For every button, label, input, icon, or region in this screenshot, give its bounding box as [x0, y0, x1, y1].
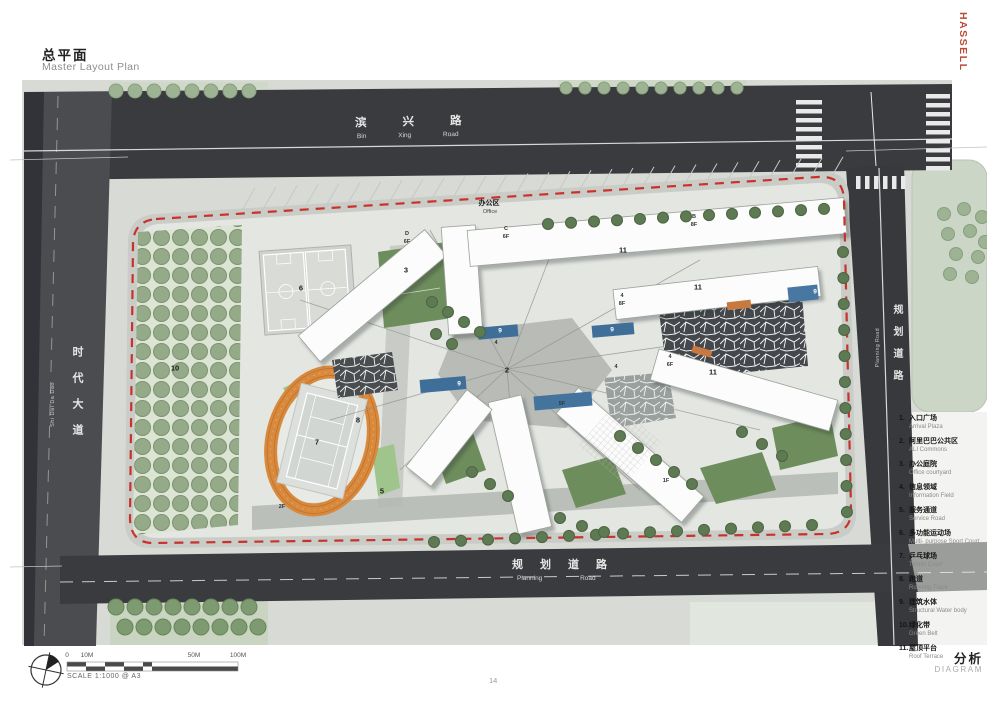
tree-icon: [443, 307, 454, 318]
tree-icon: [427, 297, 438, 308]
scale-bar: [67, 662, 238, 671]
tree-icon: [483, 534, 494, 545]
scale-tick-100m: 100M: [230, 652, 246, 659]
tree-icon: [212, 619, 228, 635]
tree-icon: [841, 507, 852, 518]
crosswalk-stripe: [926, 103, 950, 108]
tree-icon: [615, 431, 626, 442]
tree-icon: [560, 82, 572, 94]
legend-item-number: 10.: [899, 622, 909, 629]
crosswalk-stripe: [926, 139, 950, 144]
scale-caption: SCALE 1:1000 @ A3: [67, 673, 141, 680]
site-plan-drawing: [0, 0, 987, 703]
legend-item-label-en: Service Road: [909, 516, 987, 522]
crosswalk-stripe: [856, 176, 861, 189]
legend-item-number: 2.: [899, 438, 909, 445]
tree-icon: [669, 467, 680, 478]
tree-icon: [447, 339, 458, 350]
tree-icon: [757, 439, 768, 450]
tree-icon: [204, 84, 218, 98]
scale-tick-50m: 50M: [188, 652, 201, 659]
tree-icon: [773, 206, 784, 217]
tree-icon: [839, 351, 850, 362]
crosswalk-stripe: [926, 94, 950, 99]
legend-item-label-en: ALI Commons: [909, 447, 987, 453]
tree-icon: [543, 219, 554, 230]
tree-icon: [966, 271, 979, 284]
crosswalk-stripe: [796, 127, 822, 132]
legend-item-number: 6.: [899, 530, 909, 537]
tree-icon: [146, 599, 162, 615]
tree-icon: [599, 527, 610, 538]
legend-item: 9.建筑水体Structural Water body: [899, 597, 987, 614]
crosswalk-stripe: [796, 136, 822, 141]
road-name-shidai-en: Shi Dai Da Dao: [50, 382, 56, 427]
legend-item: 4.信息领域Information Field: [899, 482, 987, 499]
road-name-planning-south-zh: 规划道路: [512, 556, 624, 572]
legend-item: 3.办公庭院Office courtyard: [899, 459, 987, 476]
legend-item: 5.服务通道Service Road: [899, 505, 987, 522]
tree-icon: [117, 619, 133, 635]
legend-item-label-zh: 乒乓球场: [909, 553, 937, 560]
tree-icon: [777, 451, 788, 462]
tree-icon: [727, 208, 738, 219]
legend-item-label-zh: 跑道: [909, 576, 923, 583]
tree-icon: [731, 82, 743, 94]
crosswalk-stripe: [926, 112, 950, 117]
tree-icon: [589, 216, 600, 227]
tree-icon: [672, 526, 683, 537]
tree-icon: [839, 377, 850, 388]
tree-icon: [655, 82, 667, 94]
crosswalk-stripe: [926, 166, 950, 171]
tree-icon: [136, 619, 152, 635]
legend-item-label-en: Green Belt: [909, 631, 987, 637]
tree-icon: [838, 299, 849, 310]
legend-item-number: 1.: [899, 415, 909, 422]
tree-icon: [231, 619, 247, 635]
tree-icon: [485, 479, 496, 490]
tree-icon: [753, 522, 764, 533]
tree-icon: [165, 599, 181, 615]
tree-icon: [109, 84, 123, 98]
tree-icon: [537, 532, 548, 543]
tree-icon: [819, 203, 830, 214]
tree-icon: [598, 82, 610, 94]
tree-icon: [976, 211, 987, 224]
tree-icon: [612, 215, 623, 226]
tree-icon: [750, 207, 761, 218]
tree-icon: [636, 82, 648, 94]
tree-icon: [185, 84, 199, 98]
master-layout-plan-page: 总平面 Master Layout Plan HASSELL 滨兴路 Bin X…: [0, 0, 987, 703]
tree-icon: [712, 82, 724, 94]
tree-icon: [693, 82, 705, 94]
legend-item-label-zh: 信息领域: [909, 484, 937, 491]
crosswalk-stripe: [796, 109, 822, 114]
tree-icon: [841, 481, 852, 492]
tree-icon: [250, 619, 266, 635]
scale-tick-10m: 10M: [81, 652, 94, 659]
tree-icon: [796, 205, 807, 216]
tree-icon: [459, 317, 470, 328]
legend-item-label-en: Running Track: [909, 585, 987, 591]
tree-icon: [840, 429, 851, 440]
tree-icon: [658, 212, 669, 223]
crosswalk-stripe: [796, 118, 822, 123]
tree-icon: [681, 211, 692, 222]
tree-icon: [566, 217, 577, 228]
tree-icon: [456, 535, 467, 546]
legend-item-label-zh: 绿化带: [909, 622, 930, 629]
tree-icon: [958, 203, 971, 216]
page-number: 14: [489, 676, 497, 685]
tree-icon: [964, 225, 977, 238]
tree-icon: [242, 84, 256, 98]
tree-icon: [510, 533, 521, 544]
tree-icon: [618, 528, 629, 539]
tree-icon: [651, 455, 662, 466]
crosswalk-stripe: [883, 176, 888, 189]
tree-icon: [223, 84, 237, 98]
tree-icon: [555, 513, 566, 524]
legend-item: 6.多功能运动场Multi- purpose Sport Court: [899, 528, 987, 545]
legend-item: 1.入口广场Arrival Plaza: [899, 413, 987, 430]
green-belt: [133, 225, 242, 535]
tree-icon: [942, 228, 955, 241]
tree-icon: [699, 524, 710, 535]
legend-item-label-en: Tennis Court: [909, 562, 987, 568]
tree-icon: [503, 491, 514, 502]
tree-icon: [979, 236, 987, 249]
tree-icon: [579, 82, 591, 94]
tree-icon: [429, 537, 440, 548]
tree-icon: [807, 519, 818, 530]
crosswalk-stripe: [926, 130, 950, 135]
legend-item-label-en: Multi- purpose Sport Court: [909, 539, 987, 545]
tree-icon: [944, 268, 957, 281]
tree-icon: [128, 84, 142, 98]
crosswalk-stripe: [865, 176, 870, 189]
legend-item-number: 7.: [899, 553, 909, 560]
legend-item: 7.乒乓球场Tennis Court: [899, 551, 987, 568]
crosswalk-stripe: [796, 100, 822, 105]
legend-item-label-zh: 阿里巴巴公共区: [909, 438, 958, 445]
page-subtitle: Master Layout Plan: [42, 61, 140, 73]
road-name-binxing-zh: 滨兴路: [355, 112, 498, 131]
tree-icon: [840, 403, 851, 414]
road-name-planning-south-en: Planning Road: [517, 575, 596, 582]
crosswalk-stripe: [892, 176, 897, 189]
legend-item: 10.绿化带Green Belt: [899, 620, 987, 637]
tree-icon: [166, 84, 180, 98]
tree-icon: [645, 527, 656, 538]
legend-item-label-en: Office courtyard: [909, 470, 987, 476]
tree-icon: [431, 329, 442, 340]
tree-icon: [780, 521, 791, 532]
legend-item: 2.阿里巴巴公共区ALI Commons: [899, 436, 987, 453]
tree-icon: [475, 327, 486, 338]
tree-icon: [938, 208, 951, 221]
legend-item-number: 5.: [899, 507, 909, 514]
tree-icon: [147, 84, 161, 98]
road-name-planning-east-en: Planning Road: [875, 328, 881, 367]
brand-logo: HASSELL: [957, 12, 969, 72]
crosswalk-stripe: [926, 121, 950, 126]
crosswalk-stripe: [796, 154, 822, 159]
tree-icon: [564, 530, 575, 541]
north-compass-icon: [25, 649, 68, 692]
tree-icon: [155, 619, 171, 635]
road-name-shidai-zh: 时代大道: [69, 346, 85, 450]
tree-icon: [193, 619, 209, 635]
tree-icon: [950, 248, 963, 261]
tree-icon: [841, 455, 852, 466]
legend-item-label-en: Information Field: [909, 493, 987, 499]
legend-item-label-zh: 服务通道: [909, 507, 937, 514]
tree-icon: [617, 82, 629, 94]
road-name-planning-east-zh: 规划道路: [889, 304, 904, 392]
tree-icon: [839, 325, 850, 336]
tree-icon: [635, 213, 646, 224]
legend-item-number: 9.: [899, 599, 909, 606]
tree-icon: [184, 599, 200, 615]
tree-icon: [737, 427, 748, 438]
legend-item-label-zh: 多功能运动场: [909, 530, 951, 537]
tree-icon: [241, 599, 257, 615]
legend-item-number: 4.: [899, 484, 909, 491]
crosswalk-stripe: [874, 176, 879, 189]
tree-icon: [972, 251, 985, 264]
legend-item: 8.跑道Running Track: [899, 574, 987, 591]
tree-icon: [467, 467, 478, 478]
tree-icon: [674, 82, 686, 94]
legend-item-label-zh: 办公庭院: [909, 461, 937, 468]
legend: 1.入口广场Arrival Plaza2.阿里巴巴公共区ALI Commons3…: [899, 413, 987, 666]
tree-icon: [174, 619, 190, 635]
tree-icon: [127, 599, 143, 615]
scale-tick-0: 0: [65, 652, 69, 659]
tree-icon: [838, 273, 849, 284]
crosswalk-stripe: [901, 176, 906, 189]
tree-icon: [203, 599, 219, 615]
legend-item-label-zh: 入口广场: [909, 415, 937, 422]
legend-item-label-en: Structural Water body: [909, 608, 987, 614]
crosswalk-stripe: [926, 157, 950, 162]
legend-item-label-en: Arrival Plaza: [909, 424, 987, 430]
tree-icon: [108, 599, 124, 615]
tree-icon: [222, 599, 238, 615]
section-title-en: DIAGRAM: [880, 665, 983, 674]
tree-icon: [577, 521, 588, 532]
legend-item-number: 8.: [899, 576, 909, 583]
tree-icon: [633, 443, 644, 454]
legend-item-number: 3.: [899, 461, 909, 468]
crosswalk-stripe: [796, 145, 822, 150]
tree-icon: [687, 479, 698, 490]
tree-icon: [704, 210, 715, 221]
legend-item-label-zh: 建筑水体: [909, 599, 937, 606]
tree-icon: [726, 523, 737, 534]
tree-icon: [838, 247, 849, 258]
